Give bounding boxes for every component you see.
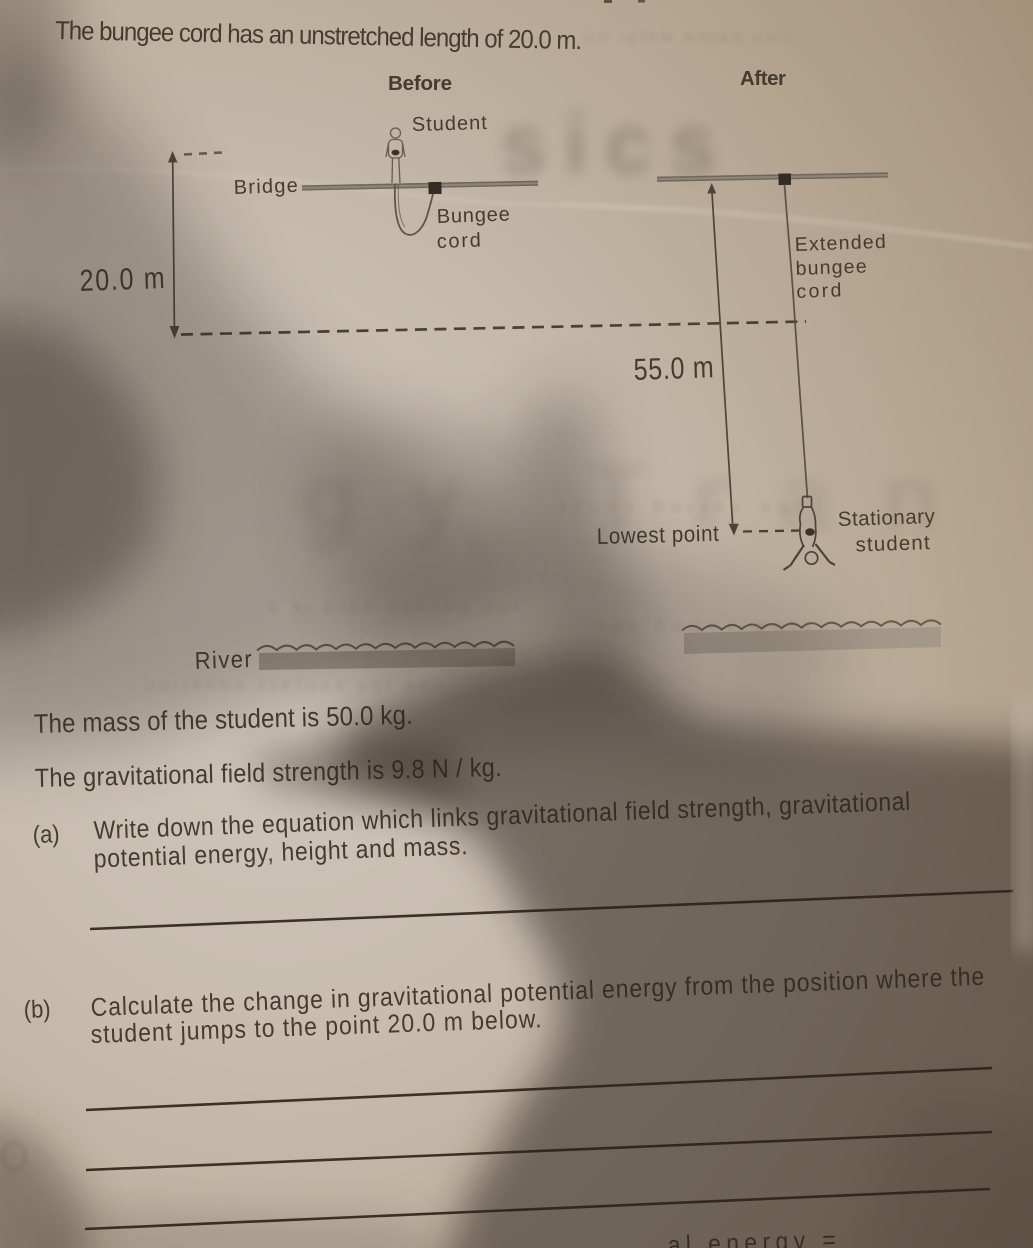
svg-text:student: student	[855, 531, 930, 556]
svg-text:Student: Student	[412, 112, 488, 136]
svg-text:After: After	[740, 67, 786, 90]
svg-text:Stationary: Stationary	[837, 505, 935, 531]
svg-text:bungee: bungee	[795, 256, 867, 280]
svg-text:cord: cord	[796, 279, 842, 303]
svg-text:Bungee: Bungee	[436, 203, 510, 228]
svg-text:(b): (b)	[23, 995, 51, 1023]
svg-text:Before: Before	[388, 72, 452, 95]
svg-text:cord: cord	[436, 229, 481, 253]
svg-text:Bridge: Bridge	[233, 175, 298, 199]
svg-text:(a): (a)	[32, 820, 60, 848]
svg-text:55.0 m: 55.0 m	[633, 350, 714, 387]
